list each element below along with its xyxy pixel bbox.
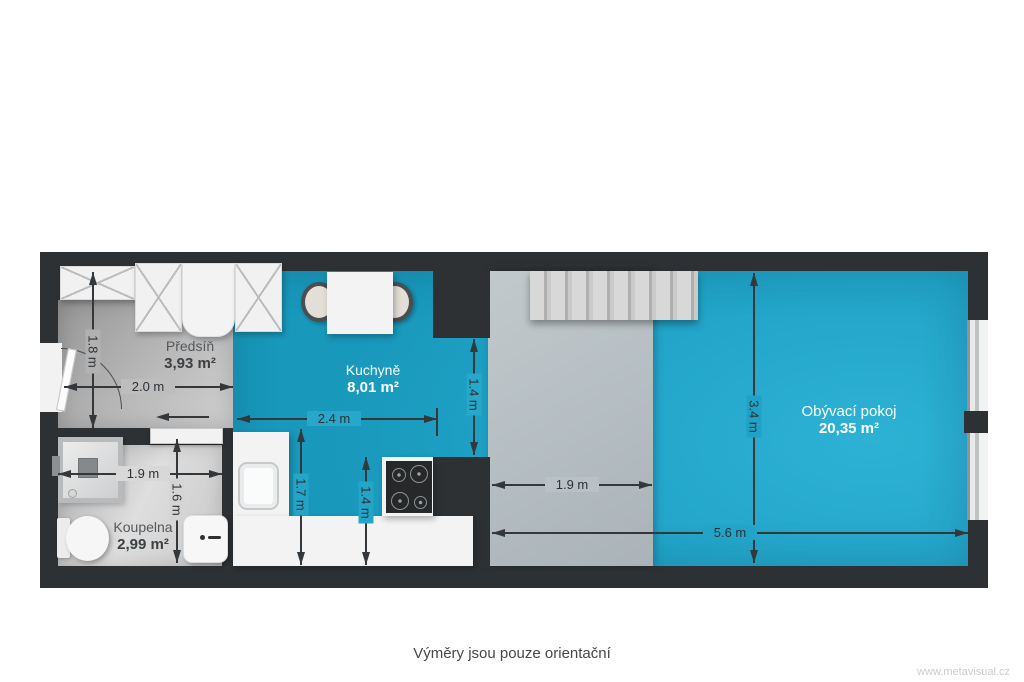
room-area: 2,99 m² [93, 536, 193, 553]
window-icon [967, 320, 988, 411]
floorplan-page: 1.8 m 2.0 m 2.4 m 1.4 m 1.9 m 1.6 m 1.7 … [0, 0, 1024, 682]
dim-arrow [58, 470, 71, 478]
room-area: 3,93 m² [140, 355, 240, 372]
dim-arrow [64, 383, 77, 391]
wardrobe-icon [235, 263, 282, 332]
dim-arrow [639, 481, 652, 489]
dim-label: 5.6 m [703, 525, 757, 540]
watermark-text: www.metavisual.cz [917, 666, 1010, 678]
dim-arrow [492, 529, 505, 537]
room-name: Předsíň [140, 338, 240, 355]
room-label-kuchyne: Kuchyně 8,01 m² [323, 362, 423, 396]
sink-icon [238, 462, 279, 510]
entry-arrow-icon [156, 413, 169, 421]
dim-label: 1.4 m [467, 374, 482, 416]
dim-arrow [362, 552, 370, 565]
room-label-predsin: Předsíň 3,93 m² [140, 338, 240, 372]
kitchen-counter [233, 516, 473, 566]
fridge-icon [182, 263, 235, 337]
room-name: Koupelna [93, 519, 193, 536]
room-label-obyvaci-pokoj: Obývací pokoj 20,35 m² [789, 403, 909, 437]
dim-label: 1.8 m [86, 330, 101, 374]
burner-icon [414, 496, 427, 509]
basin-faucet-icon [208, 536, 221, 539]
burner-icon [410, 465, 428, 483]
wall-pier-top [433, 271, 490, 338]
dim-label: 1.4 m [359, 482, 374, 524]
dim-label: 1.6 m [170, 479, 185, 521]
bathroom-door-icon [150, 428, 223, 444]
dim-arrow [89, 272, 97, 285]
shower-knob-icon [68, 489, 77, 498]
dining-table-icon [327, 272, 393, 334]
dim-label: 2.0 m [121, 379, 175, 394]
dim-label: 3.4 m [747, 396, 762, 438]
wardrobe-icon [135, 263, 182, 332]
burner-icon [391, 492, 409, 510]
dim-arrow [362, 457, 370, 470]
dim-label: 1.9 m [545, 477, 599, 492]
dim-arrow [750, 273, 758, 286]
window-pier [964, 411, 988, 433]
dim-arrow [470, 442, 478, 455]
entry-arrow-line [167, 416, 209, 418]
dim-tick [436, 408, 438, 436]
dim-arrow [470, 339, 478, 352]
room-label-koupelna: Koupelna 2,99 m² [93, 519, 193, 553]
dim-arrow [173, 439, 181, 452]
window-icon [967, 433, 988, 520]
room-area: 8,01 m² [323, 379, 423, 396]
room-area: 20,35 m² [789, 420, 909, 437]
floorplan: 1.8 m 2.0 m 2.4 m 1.4 m 1.9 m 1.6 m 1.7 … [40, 252, 988, 588]
room-name: Kuchyně [323, 362, 423, 379]
dim-arrow [209, 470, 222, 478]
dim-arrow [955, 529, 968, 537]
dim-arrow [297, 552, 305, 565]
basin-drain-icon [200, 535, 205, 540]
room-name: Obývací pokoj [789, 403, 909, 420]
dim-arrow [220, 383, 233, 391]
wardrobe-icon [60, 266, 135, 300]
dim-arrow [297, 429, 305, 442]
disclaimer-text: Výměry jsou pouze orientační [0, 645, 1024, 662]
dim-arrow [750, 550, 758, 563]
dim-label: 1.9 m [116, 466, 170, 481]
stairs-icon [530, 271, 698, 320]
dim-arrow [237, 415, 250, 423]
cooktop-icon [386, 461, 432, 513]
shower-head-icon [78, 458, 98, 478]
dim-label: 1.7 m [294, 474, 309, 516]
dim-arrow [89, 415, 97, 428]
dim-label: 2.4 m [307, 411, 361, 426]
burner-icon [392, 468, 406, 482]
dim-arrow [492, 481, 505, 489]
